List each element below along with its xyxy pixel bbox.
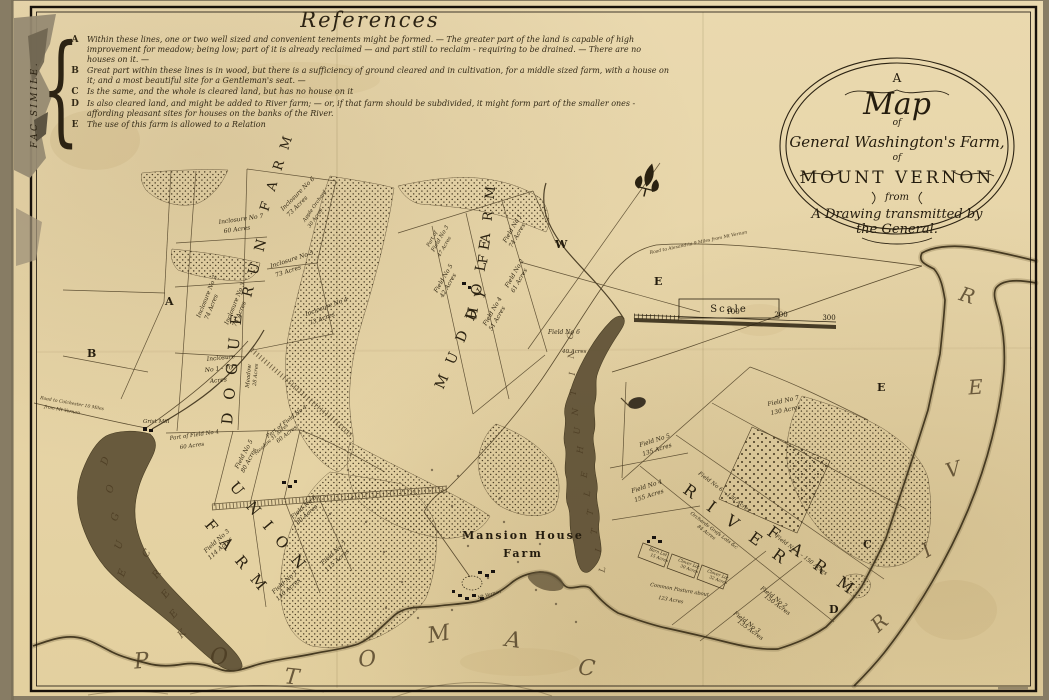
map-sheet-body: { "references": { "title": "References",…: [0, 0, 1049, 700]
ref-label: D: [829, 603, 839, 616]
field-label: Grist Mill: [143, 419, 170, 425]
cartouche-line: General Washington's Farm,: [789, 133, 1004, 151]
field-label: 28 Acres: [252, 363, 260, 387]
margin-credit-smudge: [998, 687, 1028, 689]
cartouche-line: A Drawing transmitted by: [811, 207, 984, 222]
cartouche-line: Map: [862, 87, 931, 122]
water-label: O: [210, 645, 228, 670]
facsimile-side-label: FAC SIMILE.: [30, 61, 40, 148]
reference-entry: C Is the same, and the whole is cleared …: [70, 87, 670, 98]
water-label: I: [568, 371, 578, 377]
reference-text: Great part within these lines is in wood…: [87, 66, 670, 86]
water-label: P: [132, 648, 151, 674]
ref-label: C: [863, 538, 872, 551]
water-label: N: [571, 407, 582, 417]
references-title: References: [70, 8, 670, 32]
references-brace: {: [42, 28, 80, 148]
cartouche-line: A: [892, 71, 902, 85]
reference-entry: B Great part within these lines is in wo…: [70, 66, 670, 86]
references-panel: References A Within these lines, one or …: [70, 8, 670, 133]
road-label: Road to Alexandria 9 Miles from Mt Verno…: [648, 229, 748, 256]
reference-text: Is also cleared land, and might be added…: [87, 99, 670, 119]
water-label: E: [966, 375, 984, 400]
water-label: A: [501, 627, 522, 654]
water-label: R: [865, 609, 893, 638]
cartouche-line: of: [893, 153, 903, 163]
ref-label: E: [654, 275, 662, 288]
reference-entry: E The use of this farm is allowed to a R…: [70, 120, 670, 131]
cartouche-line: the General.: [856, 222, 938, 237]
reference-text: Is the same, and the whole is cleared la…: [87, 87, 353, 98]
cartouche-line: MOUNT VERNON: [800, 168, 994, 188]
ref-label: B: [87, 347, 96, 360]
field-label: Part of Field No 4: [168, 429, 219, 442]
ref-label: W: [554, 238, 568, 251]
water-label: V: [943, 455, 966, 483]
field-label: 60 Acres: [223, 224, 250, 235]
field-label: 60 Acres: [179, 442, 204, 451]
field-label: Field No 6: [547, 329, 580, 336]
scale-bar: Scale 100 200 300: [634, 299, 836, 329]
ref-label: E: [877, 381, 885, 394]
water-label: R: [955, 281, 978, 309]
water-label: M: [425, 620, 453, 649]
scale-tick: 200: [774, 311, 787, 319]
ref-label: A: [164, 295, 174, 308]
reference-entry: D Is also cleared land, and might be add…: [70, 99, 670, 119]
scale-tick: 100: [726, 308, 739, 316]
cartouche-line: from: [884, 192, 909, 203]
mansion-label: Farm: [503, 547, 543, 560]
scale-tick: 300: [822, 314, 835, 322]
north-arrow-fleur-icon: [633, 162, 664, 200]
reference-text: Within these lines, one or two well size…: [87, 35, 670, 65]
field-label: Inclosure No 7: [217, 213, 264, 226]
pond: [627, 395, 647, 410]
water-label: H: [576, 445, 587, 455]
field-label: 40 Acres: [561, 349, 587, 355]
water-label: L: [597, 566, 608, 575]
water-label: C: [577, 655, 597, 682]
mansion-label: Mansion House: [462, 529, 584, 542]
reference-entry: A Within these lines, one or two well si…: [70, 35, 670, 65]
reference-text: The use of this farm is allowed to a Rel…: [87, 120, 266, 131]
field-label: 123 Acres: [658, 595, 685, 605]
water-label: T: [283, 664, 303, 691]
title-cartouche: A Map of General Washington's Farm, of M…: [780, 58, 1014, 244]
water-label: O: [357, 646, 378, 673]
